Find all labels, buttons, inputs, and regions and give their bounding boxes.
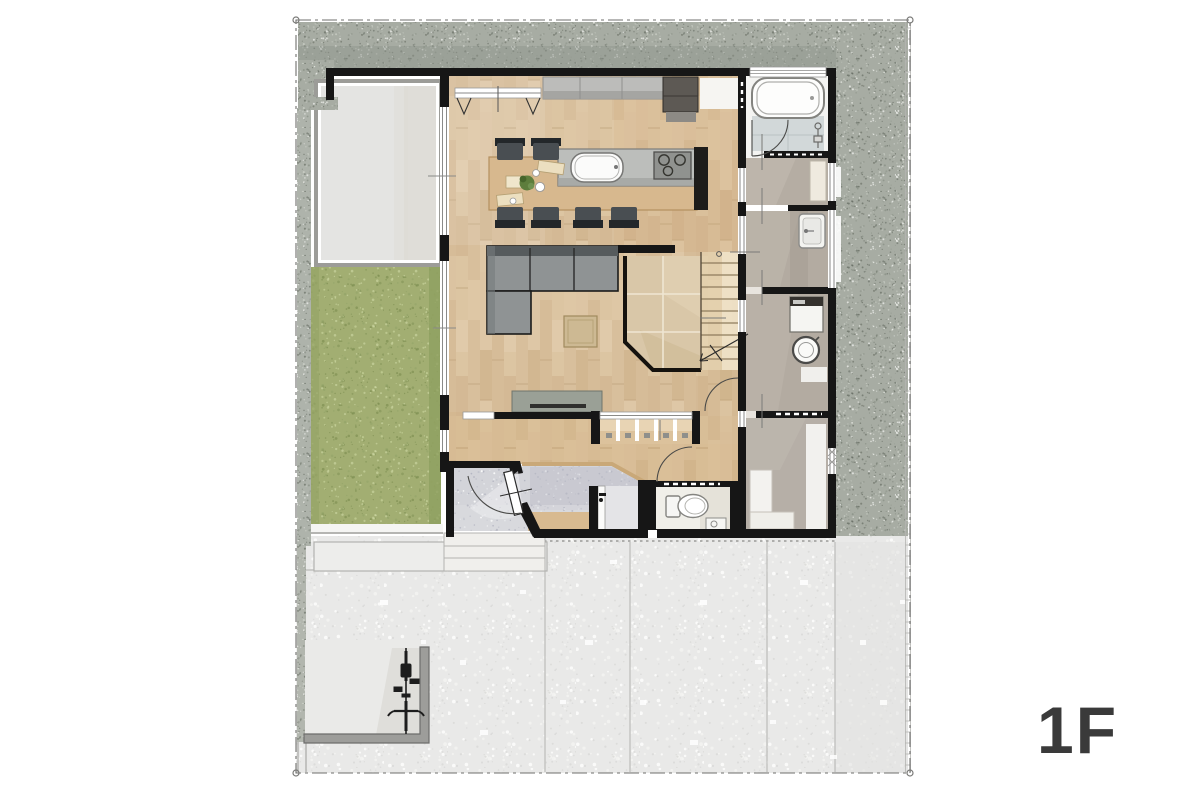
svg-text:1F: 1F bbox=[1037, 693, 1118, 767]
